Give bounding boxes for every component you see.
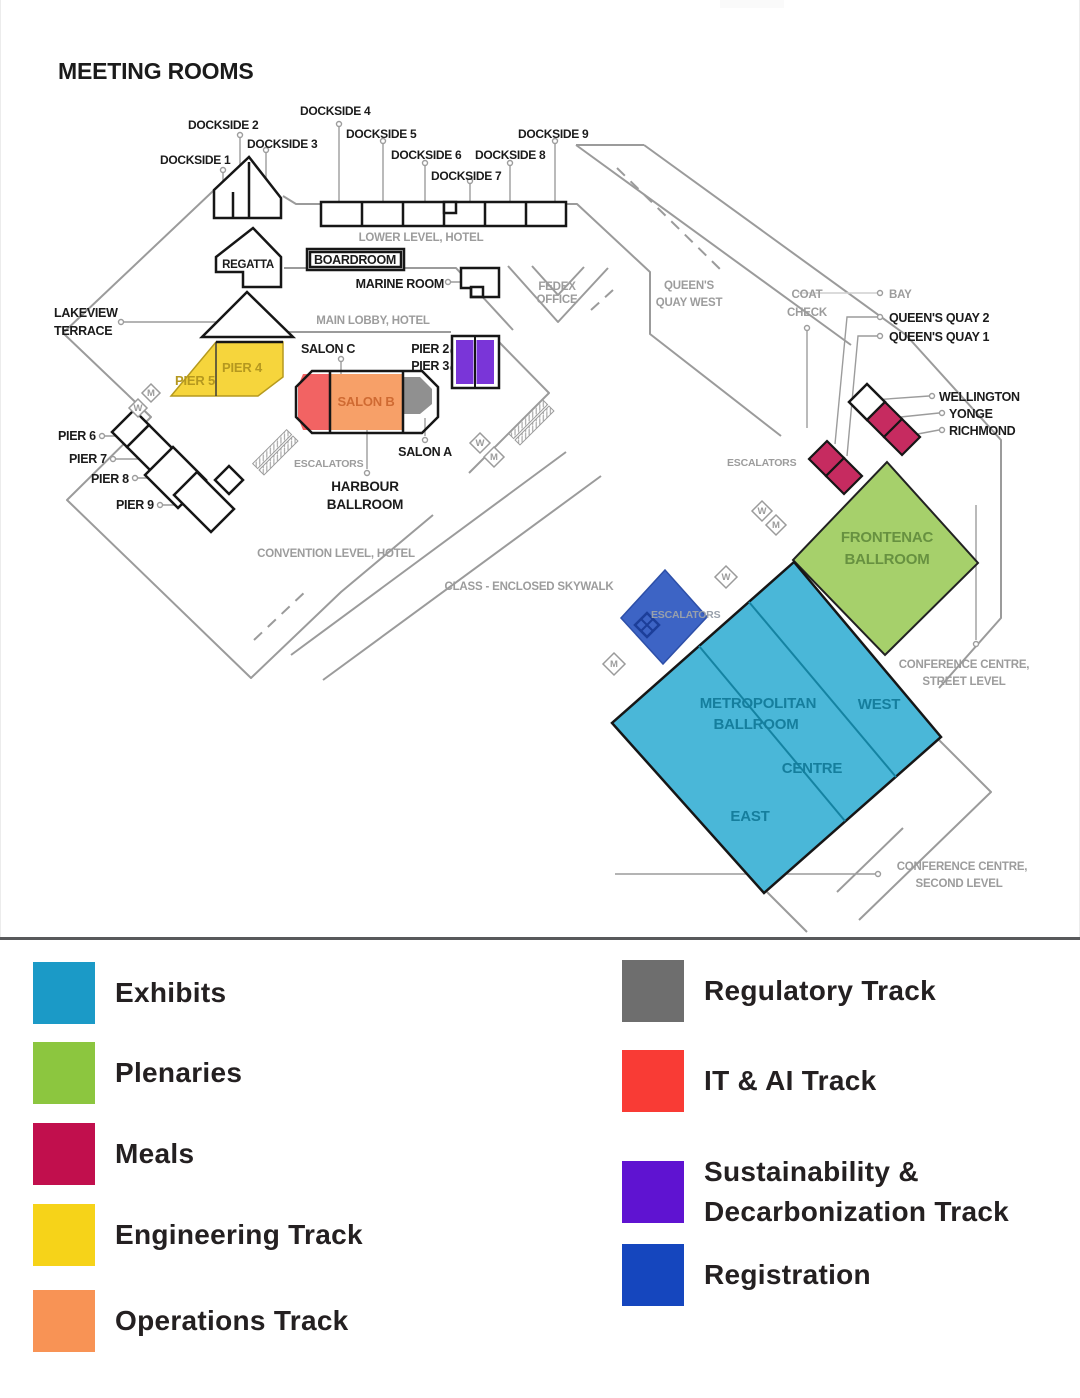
frontenac-ballroom-label-1: FRONTENAC: [841, 529, 934, 546]
frontenac-ballroom-label-2: BALLROOM: [844, 551, 929, 568]
fedex-office-label-1: FEDEX: [538, 281, 576, 293]
main-lobby-label: MAIN LOBBY, HOTEL: [316, 315, 430, 327]
coat-check-label-1: COAT: [792, 289, 823, 301]
lakeview-terrace-shape: [202, 292, 293, 337]
pier-8-label: PIER 8: [91, 472, 129, 486]
legend-label-it-ai-track: IT & AI Track: [704, 1061, 876, 1101]
dockside-row: [321, 202, 566, 226]
legend-item-operations-track: Operations Track: [33, 1290, 349, 1352]
boardroom-label: BOARDROOM: [314, 253, 396, 267]
floor-plan-svg: M W W M W M W M MEETING ROOMS DOCKSIDE 1…: [1, 0, 1080, 938]
dockside-1-label: DOCKSIDE 1: [160, 153, 231, 167]
bay-label: BAY: [889, 289, 912, 301]
pier-2-3-rooms: [452, 336, 499, 388]
queens-quay-west-label-1: QUEEN'S: [664, 280, 714, 292]
lower-level-label: LOWER LEVEL, HOTEL: [359, 232, 484, 244]
pier-7-label: PIER 7: [69, 452, 107, 466]
escalators-label-left: ESCALATORS: [294, 458, 364, 470]
escalators-label-right: ESCALATORS: [727, 457, 797, 469]
escalator-hatch-right: [509, 400, 554, 445]
fedex-office-label-2: OFFICE: [537, 294, 578, 306]
legend-swatch-regulatory-track: [622, 960, 684, 1022]
escalator-hatch-left: [253, 430, 298, 475]
legend-label-plenaries: Plenaries: [115, 1053, 242, 1093]
pier-4-label: PIER 4: [222, 360, 263, 375]
richmond-label: RICHMOND: [949, 424, 1016, 438]
legend-item-regulatory-track: Regulatory Track: [622, 960, 936, 1022]
conference-second-label-2: SECOND LEVEL: [915, 878, 1002, 890]
meeting-rooms-map: M W W M W M W M MEETING ROOMS DOCKSIDE 1…: [0, 0, 1080, 938]
dockside-7-label: DOCKSIDE 7: [431, 169, 502, 183]
regatta-room: [216, 228, 281, 287]
restroom-m-label: M: [610, 659, 618, 670]
legend-item-meals: Meals: [33, 1123, 194, 1185]
legend-swatch-meals: [33, 1123, 95, 1185]
salon-a-room: [403, 377, 432, 414]
conference-street-label-1: CONFERENCE CENTRE,: [899, 659, 1030, 671]
conference-second-label-1: CONFERENCE CENTRE,: [897, 861, 1028, 873]
legend-swatch-registration: [622, 1244, 684, 1306]
legend-swatch-it-ai-track: [622, 1050, 684, 1112]
legend-item-plenaries: Plenaries: [33, 1042, 242, 1104]
legend-swatch-engineering-track: [33, 1204, 95, 1266]
legend-label-engineering-track: Engineering Track: [115, 1215, 363, 1255]
legend-swatch-exhibits: [33, 962, 95, 1024]
restroom-m-label: M: [772, 520, 780, 531]
metropolitan-ballroom-label-2: BALLROOM: [713, 716, 798, 733]
pier-6-9-rooms: [112, 410, 243, 532]
legend-label-operations-track: Operations Track: [115, 1301, 349, 1341]
restroom-w-label: W: [722, 572, 731, 583]
dockside-8-label: DOCKSIDE 8: [475, 148, 546, 162]
conference-street-label-2: STREET LEVEL: [922, 676, 1005, 688]
dockside-5-label: DOCKSIDE 5: [346, 127, 417, 141]
marine-room-shape: [461, 268, 499, 297]
legend-swatch-operations-track: [33, 1290, 95, 1352]
lakeview-terrace-label-2: TERRACE: [54, 324, 112, 338]
queens-quay-west-label-2: QUAY WEST: [656, 297, 723, 309]
legend-label-meals: Meals: [115, 1134, 194, 1174]
restroom-m-label: M: [147, 388, 155, 399]
legend-label-sustainability-track: Sustainability & Decarbonization Track: [704, 1152, 1080, 1232]
wellington-label: WELLINGTON: [939, 390, 1020, 404]
dockside-3-label: DOCKSIDE 3: [247, 137, 318, 151]
street-level-rooms: [809, 384, 920, 494]
metropolitan-east-label: EAST: [730, 808, 769, 825]
restroom-w-label: W: [134, 403, 143, 414]
regatta-label: REGATTA: [222, 259, 274, 271]
salon-a-label: SALON A: [398, 445, 452, 459]
lakeview-terrace-label-1: LAKEVIEW: [54, 306, 118, 320]
metropolitan-west-label: WEST: [858, 696, 901, 713]
floor-plan-page: M W W M W M W M MEETING ROOMS DOCKSIDE 1…: [0, 0, 1080, 1398]
legend: Exhibits Plenaries Meals Engineering Tra…: [0, 940, 1080, 1398]
skywalk-label: CLASS - ENCLOSED SKYWALK: [445, 581, 615, 593]
dockside-2-label: DOCKSIDE 2: [188, 118, 259, 132]
top-artifact: [720, 0, 784, 8]
legend-label-exhibits: Exhibits: [115, 973, 226, 1013]
legend-swatch-plenaries: [33, 1042, 95, 1104]
metropolitan-ballroom-label-1: METROPOLITAN: [700, 695, 816, 712]
restroom-w-label: W: [476, 438, 485, 449]
legend-label-regulatory-track: Regulatory Track: [704, 971, 936, 1011]
salon-c-label: SALON C: [301, 342, 355, 356]
marine-room-label: MARINE ROOM: [356, 277, 444, 291]
legend-label-registration: Registration: [704, 1255, 871, 1295]
legend-item-engineering-track: Engineering Track: [33, 1204, 363, 1266]
restroom-m-label: M: [490, 452, 498, 463]
metropolitan-centre-label: CENTRE: [782, 760, 843, 777]
restroom-w-label: W: [758, 506, 767, 517]
dockside-4-label: DOCKSIDE 4: [300, 104, 371, 118]
legend-swatch-sustainability-track: [622, 1161, 684, 1223]
pier-6-label: PIER 6: [58, 429, 96, 443]
legend-item-registration: Registration: [622, 1244, 871, 1306]
legend-item-sustainability-track: Sustainability & Decarbonization Track: [622, 1152, 1080, 1232]
convention-level-label: CONVENTION LEVEL, HOTEL: [257, 548, 415, 560]
queens-quay-2-label: QUEEN'S QUAY 2: [889, 311, 990, 325]
legend-item-exhibits: Exhibits: [33, 962, 226, 1024]
page-title: MEETING ROOMS: [58, 58, 253, 84]
dockside-9-label: DOCKSIDE 9: [518, 127, 589, 141]
legend-item-it-ai-track: IT & AI Track: [622, 1050, 876, 1112]
salon-c-room: [298, 374, 330, 430]
yonge-label: YONGE: [949, 407, 993, 421]
salon-b-label: SALON B: [337, 394, 394, 409]
coat-check-label-2: CHECK: [787, 307, 828, 319]
pier-5-label: PIER 5: [175, 373, 215, 388]
pier-9-label: PIER 9: [116, 498, 154, 512]
harbour-ballroom-label-2: BALLROOM: [327, 497, 403, 512]
pier-2-label: PIER 2: [411, 342, 449, 356]
dockside-6-label: DOCKSIDE 6: [391, 148, 462, 162]
harbour-ballroom-label-1: HARBOUR: [331, 479, 399, 494]
escalators-label-registration: ESCALATORS: [651, 609, 721, 621]
queens-quay-1-label: QUEEN'S QUAY 1: [889, 330, 990, 344]
pier-3-label: PIER 3: [411, 359, 449, 373]
